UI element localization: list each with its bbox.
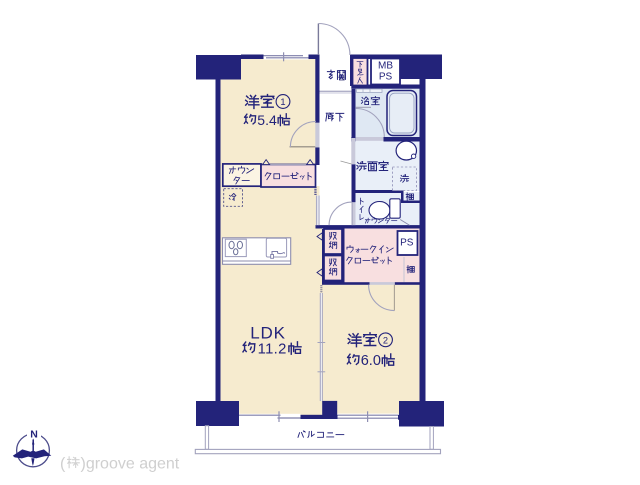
svg-text:(: ( bbox=[60, 456, 66, 473]
svg-text:1: 1 bbox=[280, 97, 285, 107]
svg-text:MB: MB bbox=[378, 61, 393, 72]
svg-text:N: N bbox=[30, 429, 38, 441]
svg-text:LDK: LDK bbox=[250, 324, 285, 343]
svg-text:5.4: 5.4 bbox=[257, 112, 277, 128]
svg-text:)groove agent: )groove agent bbox=[81, 456, 180, 473]
svg-text:PS: PS bbox=[379, 72, 393, 83]
svg-text:PS: PS bbox=[400, 237, 414, 248]
svg-text:2: 2 bbox=[383, 335, 388, 345]
svg-text:11.2: 11.2 bbox=[258, 341, 287, 357]
svg-text:6.0: 6.0 bbox=[361, 353, 381, 369]
